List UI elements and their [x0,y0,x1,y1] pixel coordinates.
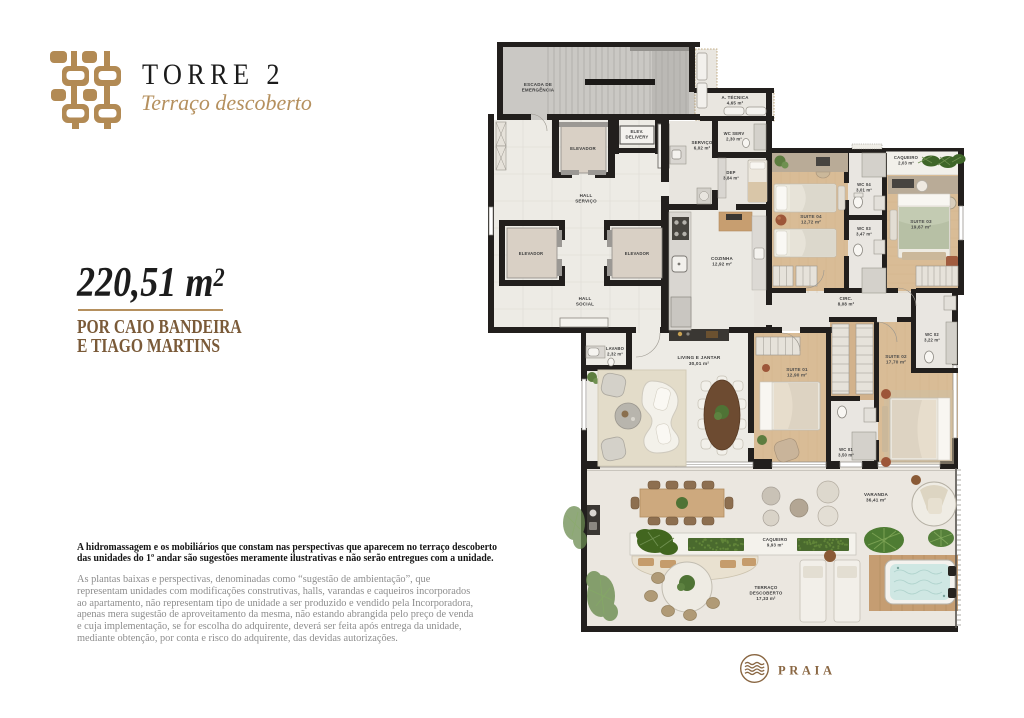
svg-text:ELEVADOR: ELEVADOR [519,251,544,256]
svg-text:PRAIA: PRAIA [778,664,836,678]
svg-text:WC 023,22 m²: WC 023,22 m² [924,332,940,342]
svg-text:SUITE 0112,90 m²: SUITE 0112,90 m² [786,367,808,378]
svg-text:LAVABO2,32 m²: LAVABO2,32 m² [606,346,625,356]
svg-text:SUITE 0217,70 m²: SUITE 0217,70 m² [885,354,907,365]
svg-text:WC 033,47 m²: WC 033,47 m² [856,226,872,236]
svg-text:ELEVADOR: ELEVADOR [625,251,650,256]
svg-text:CIRC.8,08 m²: CIRC.8,08 m² [838,296,855,307]
svg-text:SERVIÇO6,02 m²: SERVIÇO6,02 m² [691,140,712,151]
svg-text:COZINHA12,92 m²: COZINHA12,92 m² [711,256,733,267]
svg-text:WC 043,01 m²: WC 043,01 m² [856,182,872,192]
svg-text:WC 013,50 m²: WC 013,50 m² [838,447,854,457]
svg-text:SUITE 0412,72 m²: SUITE 0412,72 m² [800,214,822,225]
svg-text:SUITE 0319,67 m²: SUITE 0319,67 m² [910,219,932,230]
svg-text:ELEVADOR: ELEVADOR [570,146,596,151]
svg-text:VARANDA36,41 m²: VARANDA36,41 m² [864,492,889,503]
svg-text:ESCADA DEEMERGÊNCIA: ESCADA DEEMERGÊNCIA [522,82,555,93]
svg-text:WC SERV2,30 m²: WC SERV2,30 m² [724,131,745,141]
